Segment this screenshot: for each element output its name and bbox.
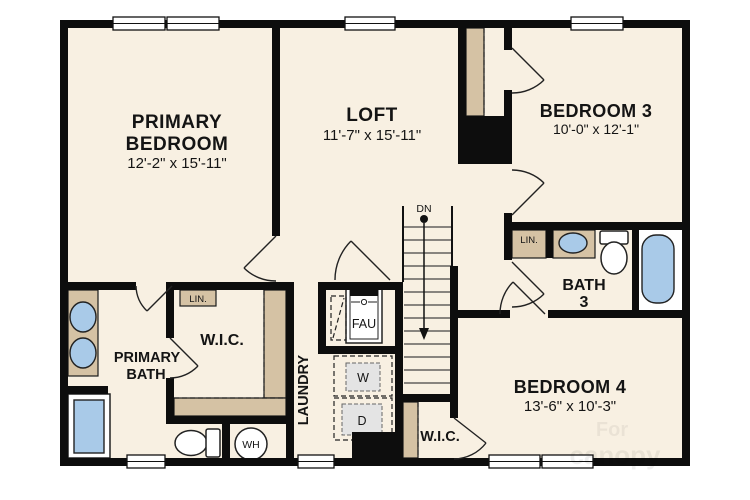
label-primary-bedroom-2: BEDROOM (126, 134, 229, 155)
label-dryer: D (357, 414, 366, 428)
label-bath3-1: BATH (562, 277, 605, 294)
wall-laundry-block (352, 432, 395, 458)
bedroom3-closet-rod (466, 28, 484, 116)
label-primary-wic: W.I.C. (200, 332, 244, 349)
wall-tub-divider (632, 230, 639, 310)
stair-start-dot (420, 215, 428, 223)
wall-outer-right (682, 20, 690, 466)
label-bedroom3-dims: 10'-0" x 12'-1" (553, 121, 639, 137)
primary-toilet-bowl (175, 431, 207, 456)
wall-wic-bottom (166, 416, 294, 424)
wall-toilet-wh-divider (222, 424, 230, 464)
primary-wic-rod-bottom (174, 398, 286, 416)
wall-chase-block (458, 116, 512, 164)
floor-plan: For canopy PRIMARY BEDROOM 12'-2" x 15'-… (0, 0, 750, 500)
primary-shower (74, 400, 104, 453)
wall-fau-left (318, 282, 326, 354)
label-primary-bath-1: PRIMARY (114, 350, 181, 366)
bath3-tub (642, 235, 674, 303)
primary-sink-1 (70, 302, 96, 332)
label-primary-bath-2: BATH (126, 367, 165, 383)
label-loft-dims: 11'-7" x 15'-11" (323, 127, 421, 144)
label-loft: LOFT (346, 105, 398, 126)
label-stairs-dn: DN (416, 203, 431, 215)
watermark-line1: For (596, 419, 628, 441)
floor-plan-drawing: For canopy PRIMARY BEDROOM 12'-2" x 15'-… (0, 0, 750, 500)
label-bedroom4: BEDROOM 4 (514, 377, 627, 397)
label-bedroom3: BEDROOM 3 (540, 101, 653, 121)
primary-toilet-tank (206, 429, 220, 457)
wall-b3closet-right-top (504, 20, 512, 50)
bath3-toilet-bowl (601, 242, 627, 274)
label-laundry: LAUNDRY (296, 355, 312, 426)
label-linen-primary: LIN. (189, 294, 206, 305)
label-primary-bedroom-dims: 12'-2" x 15'-11" (127, 155, 227, 172)
wall-wic-top (172, 282, 294, 290)
bedroom4-wic-rod (403, 402, 418, 458)
wall-fau-top (318, 282, 396, 290)
primary-wic-rod-right (264, 290, 286, 398)
wall-outer-left (60, 20, 68, 466)
label-primary-bedroom-1: PRIMARY (132, 112, 222, 133)
wall-stairs-left (395, 282, 403, 402)
fau-top-bar (350, 290, 378, 296)
wall-bath3-bottom-left (452, 310, 510, 318)
primary-sink-2 (70, 338, 96, 368)
wall-primary-loft (272, 20, 280, 236)
wall-wic-laundry (286, 282, 294, 466)
wall-loft-right (458, 20, 466, 120)
bath3-sink (559, 233, 587, 253)
wall-bath3-bottom-right (548, 310, 690, 318)
wall-b3closet-right-bottom (504, 90, 512, 118)
wall-shower-stub (60, 386, 108, 394)
wall-bath3-top (504, 222, 690, 230)
label-bedroom4-dims: 13'-6" x 10'-3" (524, 398, 616, 415)
label-water-heater: WH (242, 439, 260, 451)
label-washer: W (357, 371, 369, 385)
label-bedroom4-wic: W.I.C. (420, 429, 459, 445)
wall-bath3-left (504, 230, 512, 260)
wall-primary-bath-top (60, 282, 136, 290)
wall-bath3-vanity-divider (546, 230, 553, 258)
wall-b4wic-left (395, 402, 403, 458)
wall-fau-bottom (318, 346, 396, 354)
watermark-line2: canopy (569, 440, 661, 470)
label-bath3-2: 3 (580, 294, 589, 311)
label-fau: FAU (352, 317, 376, 331)
wall-stairs-bottom (395, 394, 458, 402)
wall-b4wic-right-stub (450, 402, 458, 418)
label-linen-bath3: LIN. (520, 235, 537, 246)
wall-stairs-right (450, 266, 458, 402)
